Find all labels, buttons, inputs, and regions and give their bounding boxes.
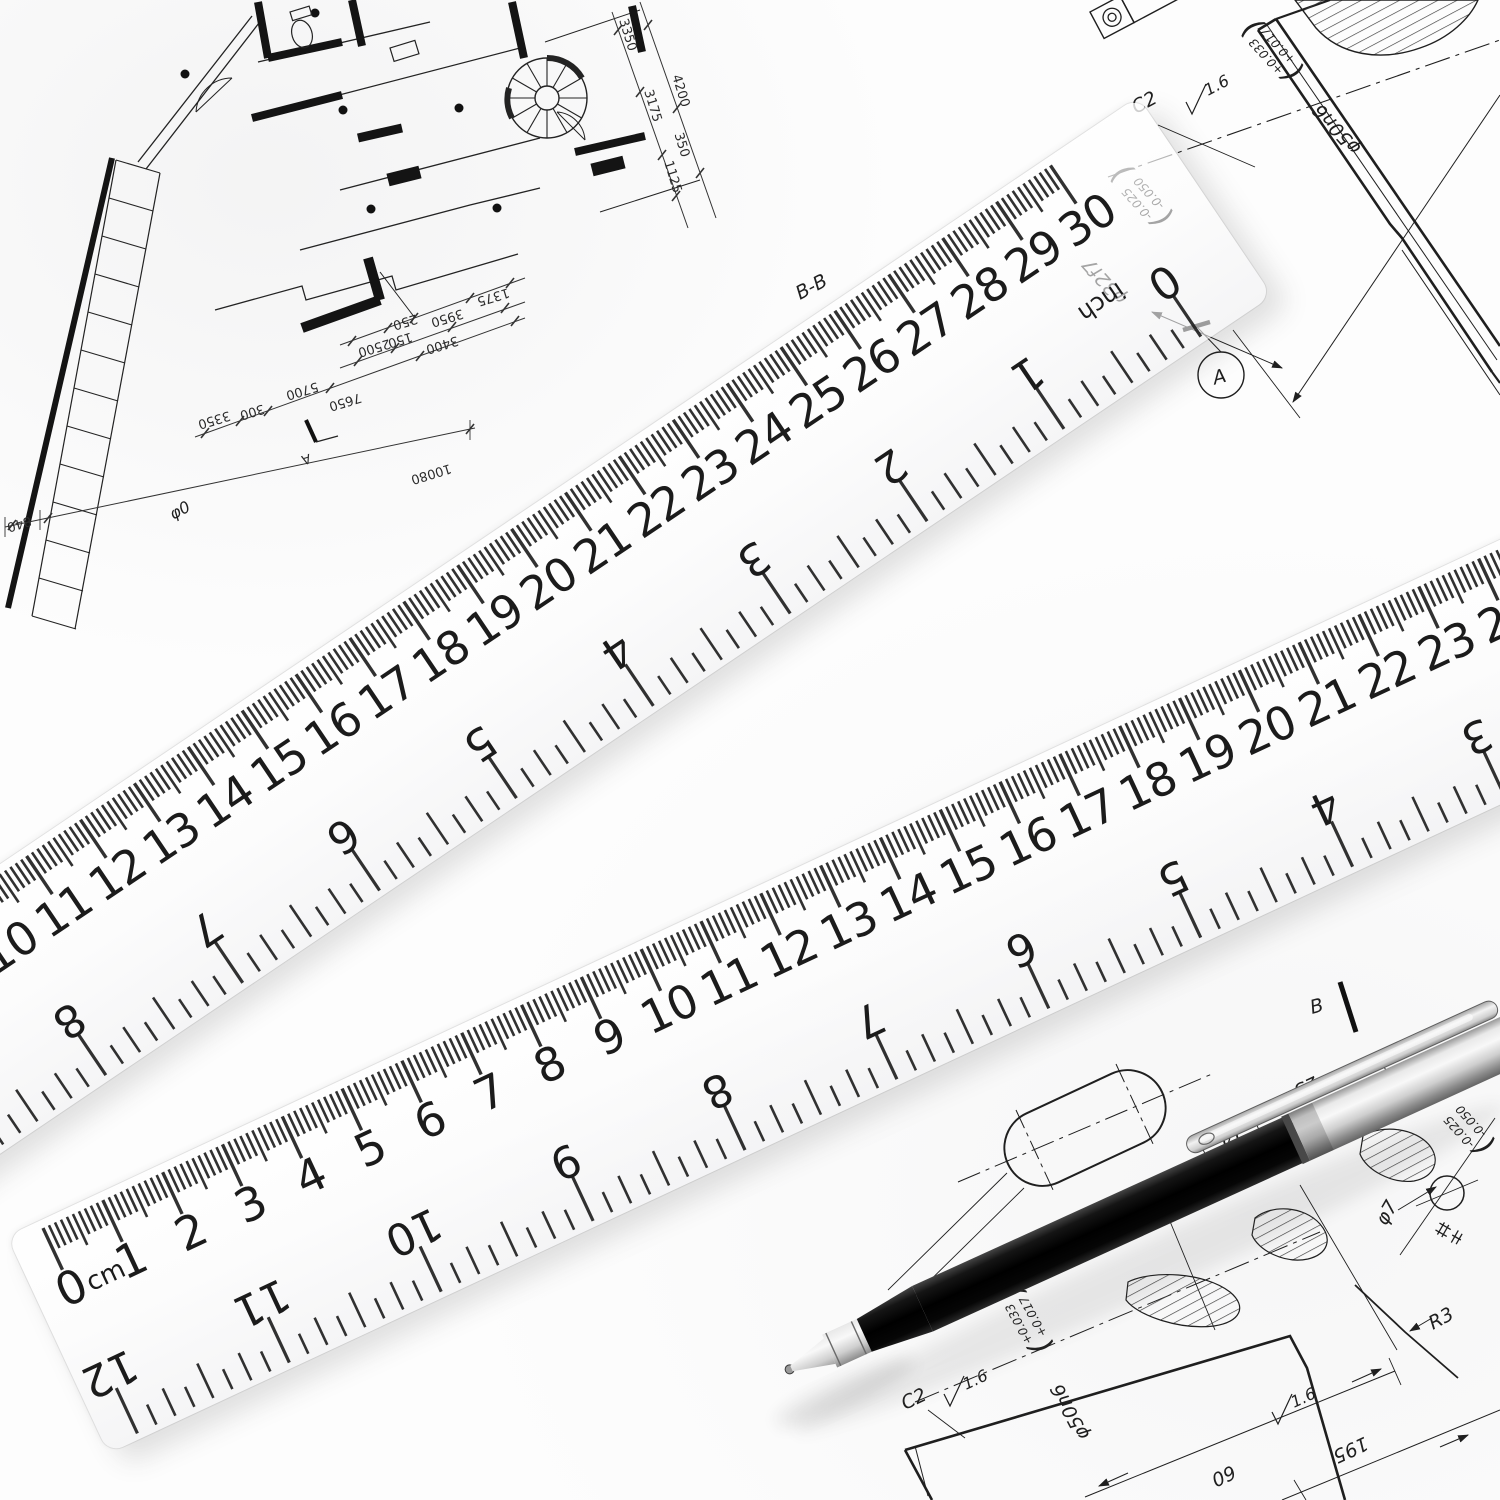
svg-text:18: 18 [1111,749,1185,822]
svg-text:5: 5 [454,714,506,772]
svg-text:9: 9 [542,1132,589,1190]
edge-tolerance-br: ( -0.025 -0.050 [1439,1100,1500,1163]
svg-text:5: 5 [1149,849,1196,907]
svg-text:150: 150 [386,329,414,351]
svg-text:3: 3 [1453,707,1500,765]
svg-text:7: 7 [846,990,893,1048]
floor-plan-labels: 250 3950 1375 2500 150 3400 3350 300 570… [5,17,692,534]
svg-text:6: 6 [997,920,1044,978]
svg-text:8: 8 [694,1061,741,1119]
svg-text:300: 300 [238,401,266,423]
svg-text:φ50n6: φ50n6 [1046,1380,1094,1444]
svg-text:3175: 3175 [640,88,664,124]
svg-text:3: 3 [727,530,779,588]
svg-text:φ7: φ7 [1371,1197,1402,1229]
spiral-staircase [507,58,587,140]
svg-text:7: 7 [180,899,232,957]
svg-text:12: 12 [752,917,826,990]
svg-text:4: 4 [286,1146,334,1207]
svg-text:6: 6 [317,807,369,865]
svg-text:15: 15 [931,833,1005,906]
svg-text:19: 19 [1170,721,1244,794]
svg-text:B: B [1308,994,1326,1019]
svg-text:1125: 1125 [660,159,684,195]
svg-text:12: 12 [73,1339,145,1409]
svg-text:1.6: 1.6 [960,1366,991,1394]
hatched-lobe-2 [1360,1129,1435,1181]
hatched-lobe-1 [1252,1209,1327,1260]
svg-text:14: 14 [871,861,945,934]
section-cut-mark-b [1340,982,1356,1032]
svg-text:20: 20 [1230,694,1304,767]
svg-text:11: 11 [692,945,766,1018]
svg-text:A: A [1208,365,1228,390]
svg-text:17: 17 [1051,777,1125,850]
svg-text:1.6: 1.6 [1288,1384,1319,1412]
svg-text:4: 4 [591,622,643,680]
svg-text:10080: 10080 [409,460,453,486]
svg-text:1375: 1375 [475,284,511,308]
svg-text:4200: 4200 [668,73,692,109]
section-cut-mark [306,420,316,442]
svg-text:C2: C2 [898,1384,930,1415]
cjk-annotation-marks [1434,1220,1464,1246]
svg-text:R3: R3 [1425,1303,1458,1334]
svg-text:0: 0 [1138,253,1190,311]
svg-text:13: 13 [811,889,885,962]
svg-text:8: 8 [43,991,95,1049]
svg-text:7650: 7650 [327,389,363,413]
svg-text:2: 2 [166,1202,214,1263]
svg-text:60: 60 [1208,1460,1239,1490]
svg-text:B-B: B-B [792,270,831,305]
svg-text:23: 23 [1290,1071,1321,1101]
svg-text:9: 9 [585,1006,633,1067]
svg-text:14: 14 [1216,1123,1247,1153]
svg-text:3350: 3350 [196,407,232,431]
svg-text:250: 250 [391,311,419,333]
svg-text:23: 23 [1410,610,1484,683]
svg-text:350: 350 [671,131,693,159]
mech-br-labels: C2 1.6 1.6 φ50n6 ( +0.033 +0.017 ) 60 19… [898,994,1500,1490]
inch-unit-label: inch [1073,277,1130,328]
svg-text:11: 11 [225,1268,297,1338]
svg-text:2500: 2500 [356,335,392,359]
svg-text:5700: 5700 [284,378,320,402]
svg-text:3: 3 [226,1174,274,1235]
hatched-section [1295,0,1478,55]
svg-text:10: 10 [632,973,706,1046]
svg-text:1.6: 1.6 [1201,71,1232,100]
hatched-lobe-3 [1126,1275,1240,1327]
svg-text:8: 8 [525,1034,573,1095]
svg-text:16: 16 [991,805,1065,878]
photo-scene: 250 3950 1375 2500 150 3400 3350 300 570… [0,0,1500,1500]
svg-text:7: 7 [465,1062,513,1123]
svg-text:4: 4 [1301,778,1348,836]
svg-text:22: 22 [1350,638,1424,711]
svg-text:6: 6 [406,1090,454,1151]
svg-text:2: 2 [864,438,916,496]
tolerance-frame [1090,0,1184,38]
svg-text:5: 5 [346,1118,394,1179]
svg-text:1: 1 [1001,345,1053,403]
mech-drawing-bottom-right [888,982,1500,1500]
svg-text:10: 10 [377,1197,449,1267]
svg-text:21: 21 [1290,666,1364,739]
svg-text:195: 195 [1329,1432,1371,1467]
svg-text:φ0: φ0 [166,497,193,524]
